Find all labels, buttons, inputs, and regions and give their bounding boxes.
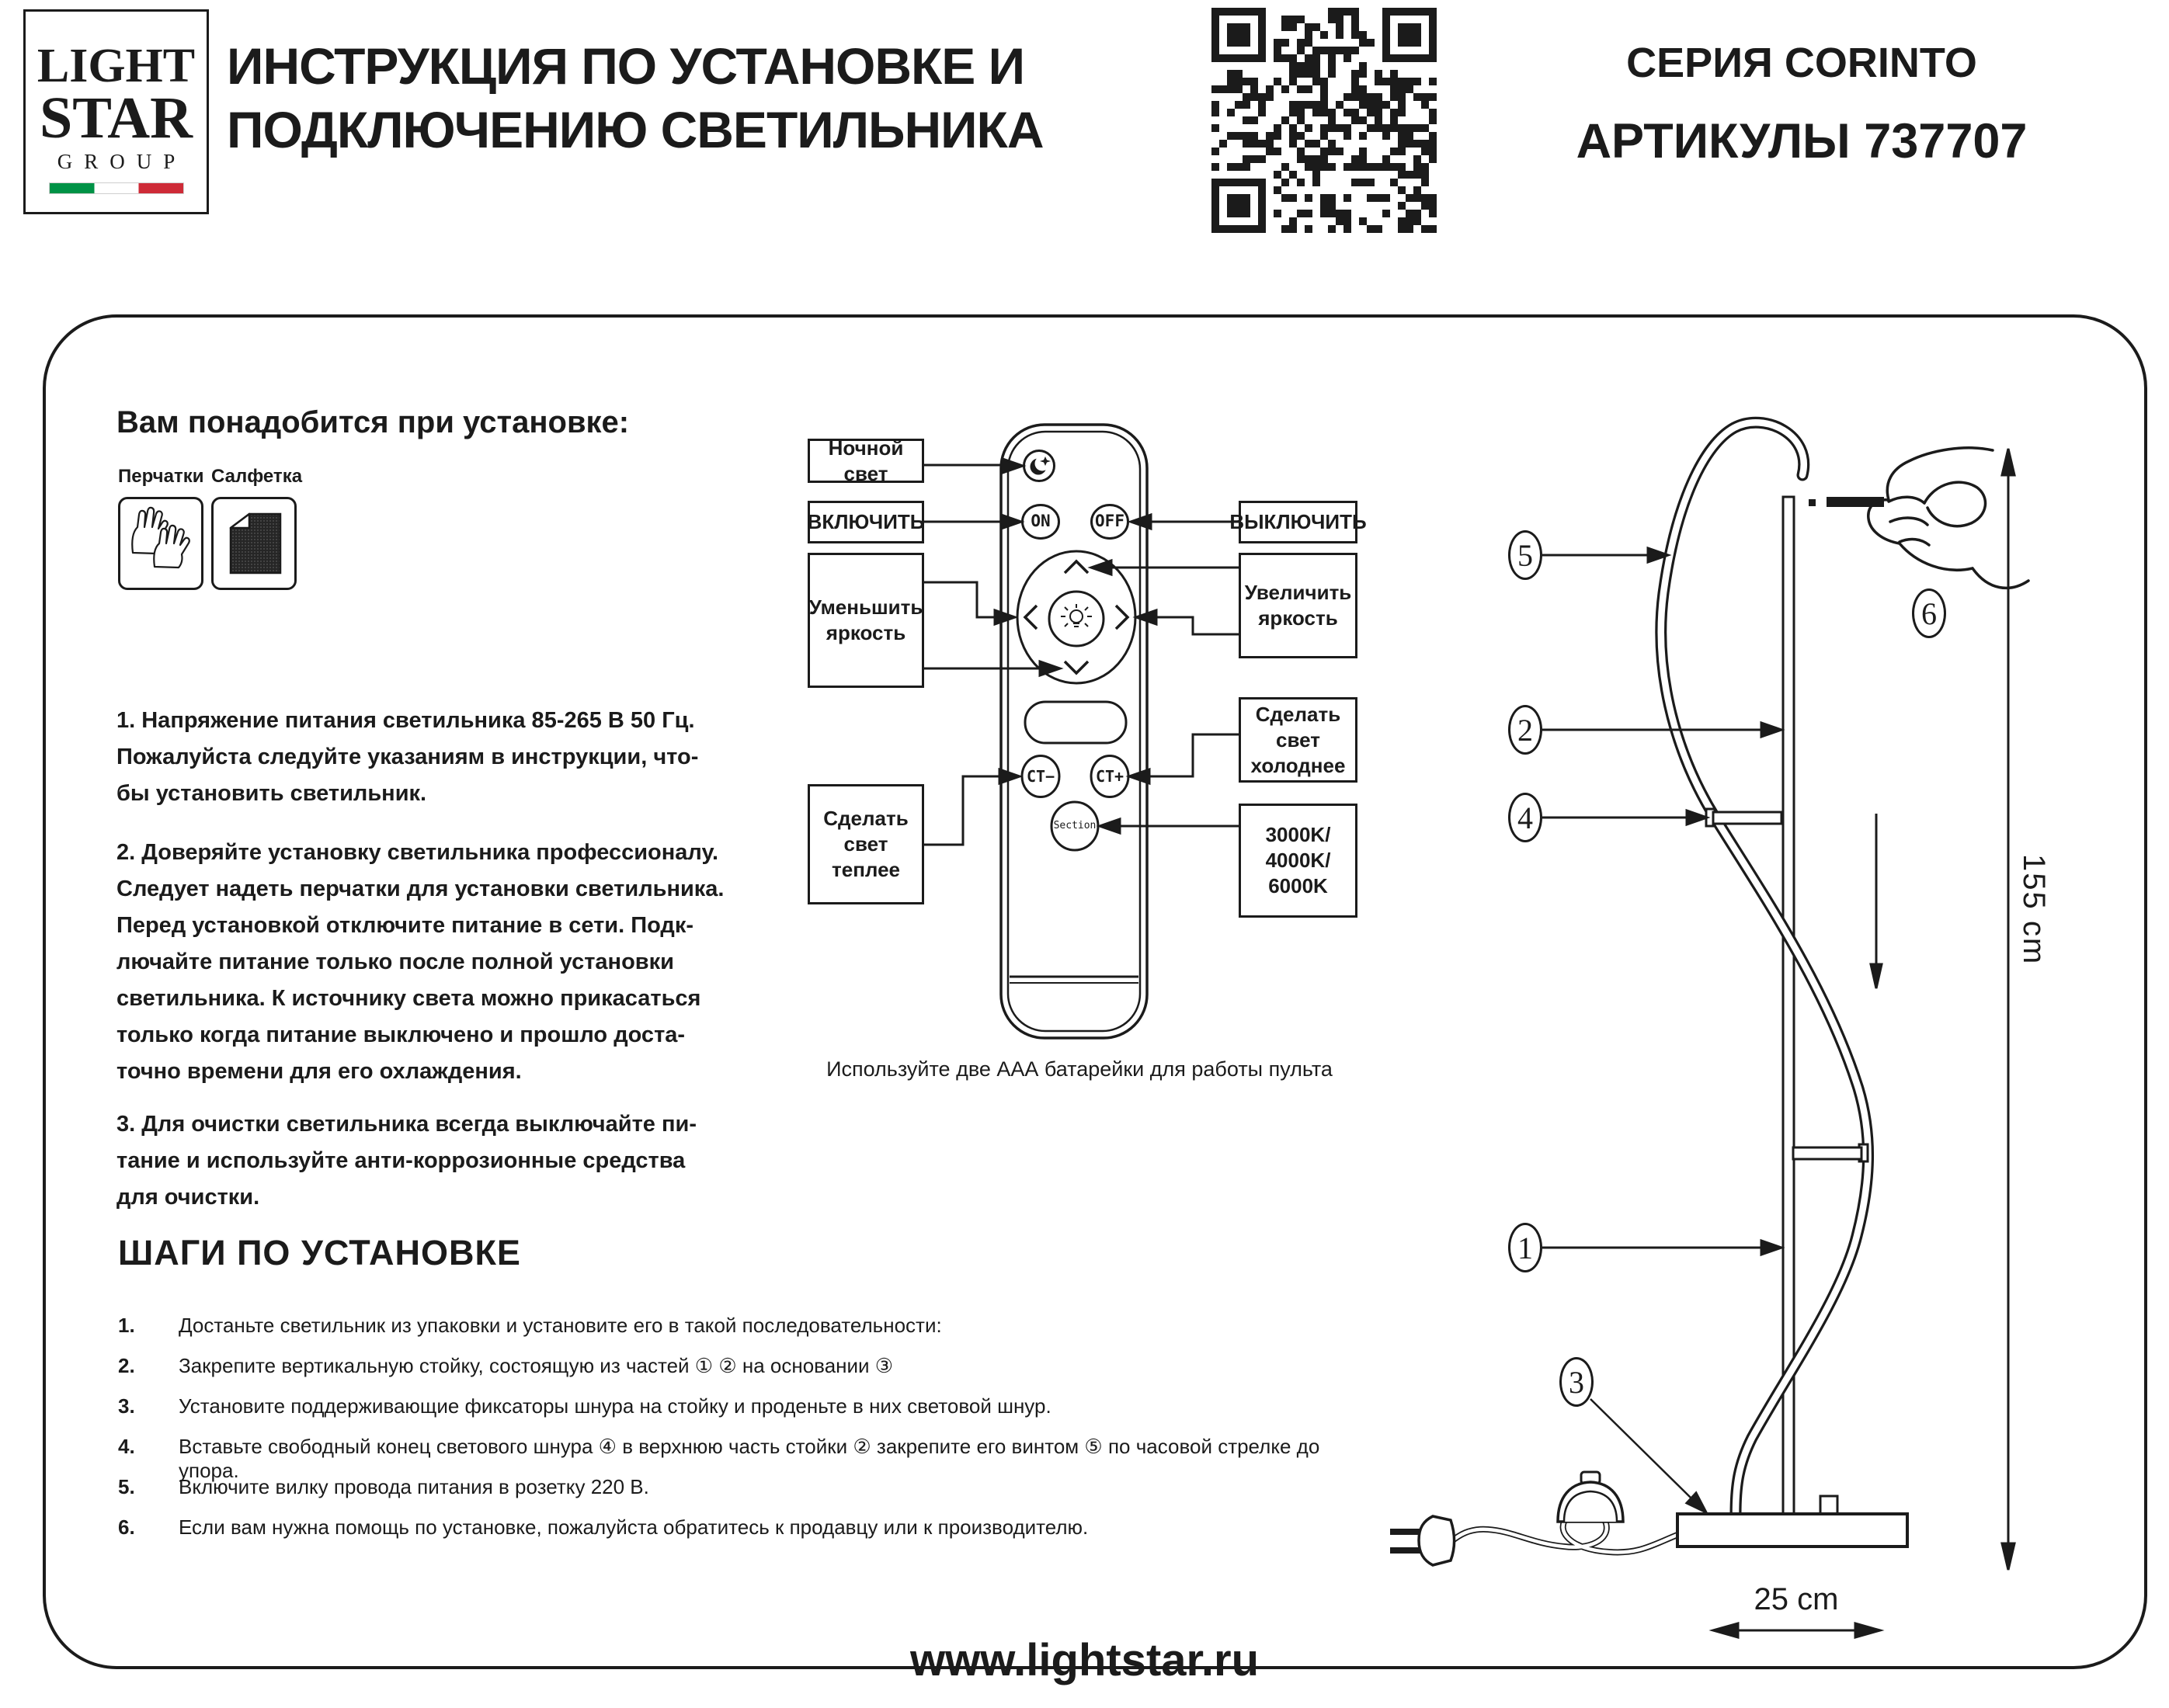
callout-3: 3 xyxy=(1559,1357,1594,1407)
light-cord xyxy=(1661,422,1868,1514)
ct-minus-label: CT− xyxy=(1020,767,1061,786)
label-night-light: Ночной свет xyxy=(808,439,924,483)
label-kelvin-presets: 3000K/ 4000K/ 6000K xyxy=(1239,804,1357,918)
label-decrease-brightness: Уменьшить яркость xyxy=(808,553,924,688)
label-increase-brightness: Увеличить яркость xyxy=(1239,553,1357,658)
power-plug-icon xyxy=(1390,1516,1455,1565)
lamp-base xyxy=(1677,1514,1907,1547)
label-make-warmer: Сделать свет теплее xyxy=(808,784,924,904)
instruction-sheet: LIGHT STAR GROUP ИНСТРУКЦИЯ ПО УСТАНОВКЕ… xyxy=(0,0,2169,1708)
callout-5: 5 xyxy=(1508,530,1542,580)
base-dimension-label: 25 cm xyxy=(1734,1582,1858,1617)
callout-1: 1 xyxy=(1508,1223,1542,1272)
foot-switch xyxy=(1558,1472,1623,1522)
battery-caption: Используйте две ААА батарейки для работы… xyxy=(823,1057,1336,1081)
diagram-canvas xyxy=(0,0,2169,1708)
dimension-lines xyxy=(1713,449,2014,1637)
section-button-label: Section xyxy=(1048,820,1101,831)
height-dimension-label: 155 cm xyxy=(2016,854,2051,965)
on-button-label: ON xyxy=(1022,512,1059,530)
off-button-label: OFF xyxy=(1091,512,1128,530)
label-make-colder: Сделать свет холоднее xyxy=(1239,697,1357,783)
callout-4: 4 xyxy=(1508,793,1542,842)
website-url: www.lightstar.ru xyxy=(0,1634,2169,1686)
ct-plus-label: CT+ xyxy=(1090,767,1130,786)
label-turn-off: ВЫКЛЮЧИТЬ xyxy=(1239,501,1357,543)
callout-6: 6 xyxy=(1912,588,1946,638)
label-turn-on: ВКЛЮЧИТЬ xyxy=(808,501,924,543)
callout-2: 2 xyxy=(1508,705,1542,755)
